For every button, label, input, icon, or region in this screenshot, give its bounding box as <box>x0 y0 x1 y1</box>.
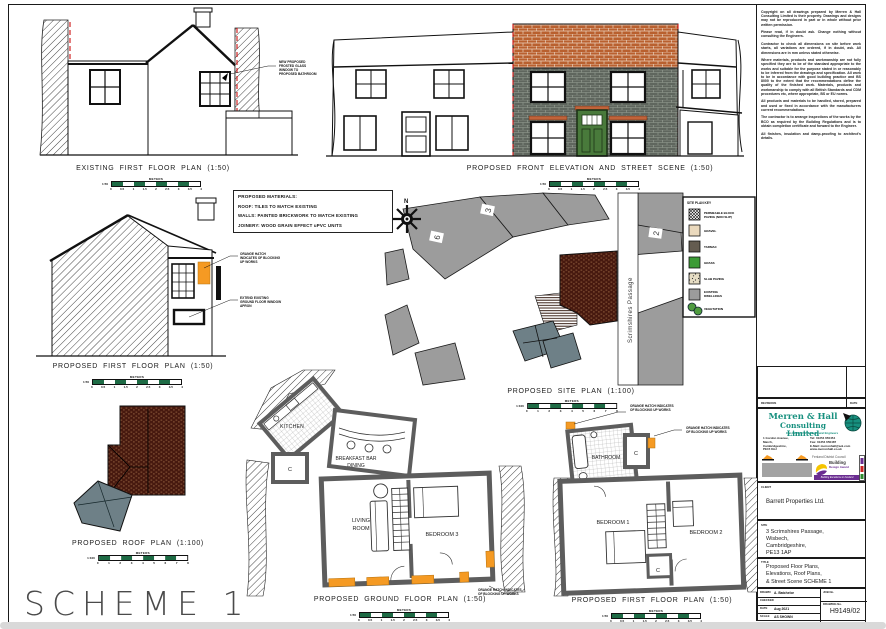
svg-text:DWELLINGS: DWELLINGS <box>704 294 722 298</box>
figure-ground-floor-plan: KITCHEN C BREAKFAST BAR DINING <box>243 368 535 600</box>
figure-proposed-first-floor-side <box>30 198 235 366</box>
site-label: SITE <box>761 523 767 527</box>
annotation-frosted-window: NEW PROPOSED FROSTED GLASS WINDOW TO PRO… <box>279 60 317 77</box>
room-label-dining: DINING <box>347 463 365 469</box>
svg-text:GRAVEL: GRAVEL <box>704 229 716 233</box>
svg-text:N: N <box>404 199 408 205</box>
award-footer: Building Excellence in Fenland <box>814 475 860 480</box>
room-label-kitchen: KITCHEN <box>280 424 304 430</box>
caption-existing-first-floor: EXISTING FIRST FLOOR PLAN (1:50) <box>76 165 230 172</box>
award-title: Building Design Award <box>829 461 849 469</box>
sofa <box>370 501 389 552</box>
digger-icon <box>762 453 774 461</box>
caption-front-elevation: PROPOSED FRONT ELEVATION AND STREET SCEN… <box>467 165 713 172</box>
street-label: Scrimshires Passage <box>628 277 634 343</box>
site-key-title: SITE PLAN KEY <box>687 201 712 205</box>
svg-text:GRASS: GRASS <box>704 261 715 265</box>
council-name: Fenland District Council <box>812 455 846 459</box>
drawing-no-label: DRAWING No. <box>823 602 842 606</box>
annotation-orange-hatch: ORANGE HATCH INDICATES OF BLOCKING UP WO… <box>630 404 674 412</box>
drawn-by: A. Batchelor <box>774 591 794 595</box>
table <box>373 484 387 498</box>
svg-text:VEGETATION: VEGETATION <box>704 307 723 311</box>
date-field-label: DATE <box>760 606 767 610</box>
annotation-orange-hatch: ORANGE HATCH INDICATES OF BLOCKING UP WO… <box>240 252 282 264</box>
drawing-sheet: NEW PROPOSED FROSTED GLASS WINDOW TO PRO… <box>0 0 886 629</box>
bed <box>414 486 459 518</box>
gauge-icon <box>859 455 865 481</box>
room-label-cupboard: C <box>656 568 660 574</box>
svg-text:SLAB PAVING: SLAB PAVING <box>704 277 725 281</box>
chimney <box>198 202 214 220</box>
svg-text:TARMAC: TARMAC <box>704 245 718 249</box>
annotation-extend-window: EXTEND EXISTING GROUND FLOOR WINDOW APRO… <box>240 296 282 308</box>
caption-ground-floor: PROPOSED GROUND FLOOR PLAN (1:50) <box>314 596 486 603</box>
drawing-title: Proposed Floor Plans,Elevations, Roof Pl… <box>766 564 831 586</box>
page-edge-scrollbar[interactable] <box>0 622 886 629</box>
scalebar: 1:50 METERS 00.511.522.533.54 <box>350 608 450 622</box>
hatched-gable <box>52 216 168 356</box>
figure-front-elevation <box>318 10 750 162</box>
photo-placeholder <box>762 463 812 477</box>
site-hatch-right <box>499 466 525 592</box>
materials-note: PROPOSED MATERIALS: ROOF: TILES TO MATCH… <box>233 190 393 233</box>
site-hatch-right <box>235 28 260 118</box>
figure-first-floor-plan: BATHROOM C <box>548 420 766 605</box>
basin <box>591 431 598 438</box>
scheme-title: SCHEME 1 <box>24 584 250 623</box>
chimney <box>196 11 210 27</box>
room-label-living-2: ROOM <box>352 526 370 532</box>
key-item-permeable-paving: PERMEABLE BLOCK PAVING (NON SLIP) <box>689 209 735 220</box>
site-hatch-left <box>246 460 269 596</box>
company-panel: Merren & Hall Consulting Limited Consult… <box>757 408 866 482</box>
scalebar: 1:50 METERS 00.511.522.533.54 <box>602 609 702 623</box>
revisions-header: REVISIONS DATE <box>757 398 866 408</box>
orange-hatch-patch <box>566 422 575 429</box>
room-label-bathroom: BATHROOM <box>592 455 621 461</box>
drawn-label: DRAWN <box>760 590 771 594</box>
caption-first-floor: PROPOSED FIRST FLOOR PLAN (1:50) <box>572 597 733 604</box>
subject-front-door <box>575 106 609 156</box>
stairs <box>392 488 410 551</box>
rainwater-pipe <box>216 266 221 300</box>
fields-panel: DRAWN A. Batchelor CHECKED DATE Aug 2021… <box>757 588 866 621</box>
title-panel: TITLE Proposed Floor Plans,Elevations, R… <box>757 558 866 588</box>
main-roof <box>108 406 185 495</box>
checked-label: CHECKED <box>760 598 774 602</box>
room-label-breakfast: BREAKFAST BAR <box>335 456 376 462</box>
scalebar: 1:100 METERS 012345678 <box>87 551 189 565</box>
street: Scrimshires Passage <box>618 193 638 385</box>
site-panel: SITE 3 Scrimshires Passage,Wisbech,Cambr… <box>757 520 866 558</box>
figure-roof-plan <box>70 403 220 533</box>
room-label-cupboard: C <box>634 451 638 457</box>
room-label-living-1: LIVING <box>352 518 370 524</box>
job-label: JOB No. <box>823 590 834 594</box>
outbuilding-roofs <box>513 321 581 368</box>
svg-text:PAVING (NON SLIP): PAVING (NON SLIP) <box>704 215 732 219</box>
client-panel: CLIENT Barrett Properties Ltd. <box>757 482 866 520</box>
scalebar: 1:50 METERS 00.511.522.533.54 <box>102 177 202 191</box>
bed <box>673 501 694 527</box>
company-contact: Tel: 01354 650454Fax: 01354 650487E-Mail… <box>810 437 864 452</box>
leader-line <box>654 430 682 436</box>
stool <box>383 445 391 453</box>
scalebar: 1:50 METERS 00.511.522.533.54 <box>540 177 640 191</box>
subject-roof-tiles <box>513 24 678 68</box>
client-name: Barrett Properties Ltd. <box>766 499 825 505</box>
orange-hatch-patch <box>198 262 210 284</box>
room-label-bedroom3: BEDROOM 3 <box>425 532 458 538</box>
copyright-notes: Copyright on all drawings prepared by Me… <box>761 10 861 143</box>
digger-icon <box>796 453 808 461</box>
materials-lines: ROOF: TILES TO MATCH EXISTINGWALLS: PAIN… <box>238 204 388 228</box>
drawing-number: H9149/02 <box>824 608 866 615</box>
revisions-label: REVISIONS <box>761 401 776 405</box>
room-label-cupboard: C <box>288 467 292 473</box>
caption-roof-plan: PROPOSED ROOF PLAN (1:100) <box>72 540 204 547</box>
revisions-table <box>757 366 866 398</box>
scalebar: 1:50 METERS 00.511.522.533.54 <box>83 375 183 389</box>
figure-site-plan: Scrimshires Passage 6 3 2 N <box>385 193 757 387</box>
scale-field-label: SCALE <box>760 614 769 618</box>
window <box>200 72 230 106</box>
figure-existing-first-floor <box>30 8 315 163</box>
company-address: 1 Gordon Avenue,March,Cambridgeshire,PE1… <box>763 437 807 452</box>
neighbour-door-left <box>402 112 430 156</box>
room-label-bedroom1: BEDROOM 1 <box>596 520 629 526</box>
orange-hatch-patch <box>648 438 655 448</box>
window <box>172 264 194 298</box>
globe-icon <box>842 412 862 432</box>
site-hatch-left <box>40 20 68 155</box>
window <box>90 70 120 104</box>
company-tagline: Consulting Civil & Structural Engineers <box>764 431 860 435</box>
main-block <box>321 473 495 587</box>
site-address: 3 Scrimshires Passage,Wisbech,Cambridges… <box>766 529 824 558</box>
bed <box>606 530 646 563</box>
scale-value: AS SHOWN <box>774 615 793 619</box>
materials-title: PROPOSED MATERIALS: <box>238 194 388 199</box>
date-label: DATE <box>850 401 857 405</box>
stool <box>365 444 373 452</box>
dining-room <box>329 410 415 476</box>
room-label-bedroom2: BEDROOM 2 <box>689 530 722 536</box>
date-value: Aug 2021 <box>774 607 789 611</box>
annotation-orange-hatch: ORANGE HATCH INDICATES OF BLOCKING UP WO… <box>686 426 730 434</box>
site-plan-key: SITE PLAN KEY PERMEABLE BLOCK PAVING (NO… <box>683 197 755 317</box>
stool <box>347 441 355 449</box>
stairs <box>647 504 667 549</box>
client-label: CLIENT <box>761 485 771 489</box>
plot-number-2: 2 <box>648 227 662 239</box>
caption-proposed-first-floor-side: PROPOSED FIRST FLOOR PLAN (1:50) <box>53 363 214 370</box>
